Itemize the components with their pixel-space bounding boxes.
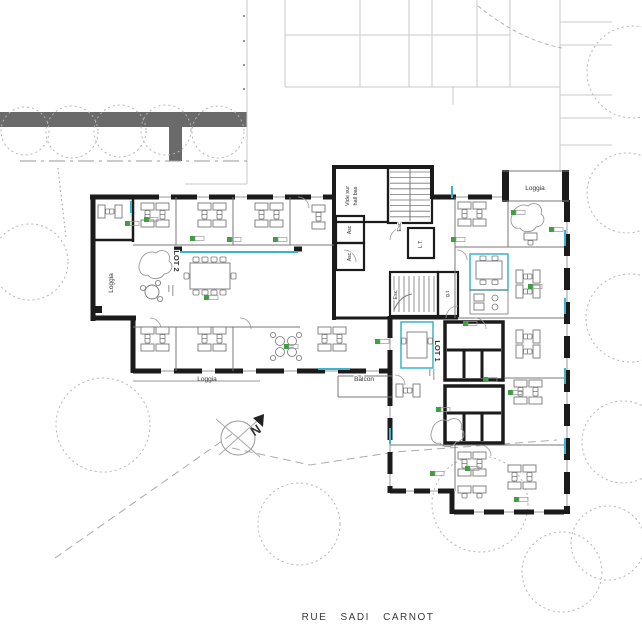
- lot-subtext-mark: [429, 369, 431, 376]
- desk: [508, 465, 521, 472]
- desk: [529, 397, 542, 404]
- plant-square: [227, 237, 232, 242]
- room-label-asc-top: Asc: [347, 225, 353, 234]
- chair: [140, 285, 145, 290]
- labels-layer: Loggia LOT 2 LOT 1 Vide sur hall bas Esc…: [108, 185, 545, 623]
- lot-subtext-mark: [172, 285, 174, 296]
- desk: [514, 380, 527, 387]
- chair: [408, 388, 413, 393]
- plant-square: [144, 217, 149, 222]
- planter-box: [456, 238, 465, 242]
- tree-icon: [587, 153, 642, 233]
- desk-cluster: [255, 203, 283, 227]
- chair: [193, 290, 199, 295]
- desk: [156, 344, 169, 351]
- loggia-post: [562, 170, 569, 202]
- chair: [492, 256, 498, 261]
- desk: [524, 233, 537, 240]
- wc-fixture: [492, 304, 498, 310]
- chair: [270, 332, 275, 337]
- round-table-set: [140, 280, 162, 301]
- plant-square: [436, 407, 441, 412]
- lot2-label: LOT 2: [172, 250, 181, 271]
- plant-square: [508, 390, 513, 395]
- plant-icon: [284, 344, 298, 349]
- chair: [145, 339, 150, 344]
- plant-icon: [514, 497, 528, 502]
- plant-square: [549, 227, 554, 232]
- chair: [462, 494, 467, 499]
- chair: [160, 215, 165, 220]
- desk: [508, 482, 521, 489]
- plant-square: [430, 471, 435, 476]
- round-table: [145, 285, 159, 299]
- chair: [477, 464, 482, 469]
- plant-square: [451, 237, 456, 242]
- chair: [316, 217, 321, 222]
- wc-fixture: [492, 295, 498, 301]
- desk: [141, 344, 154, 351]
- site-boundary: [232, 440, 557, 465]
- property-tick: [243, 88, 245, 90]
- table-petal: [276, 337, 285, 346]
- chair: [184, 273, 189, 279]
- meeting-table: [476, 261, 502, 279]
- desk-cluster: [318, 327, 346, 351]
- site-curve: [478, 6, 562, 48]
- planter-box: [435, 472, 444, 476]
- room-label-loggia-top-right: Loggia: [525, 185, 545, 192]
- desk-cluster: [198, 203, 226, 227]
- planter-box: [516, 211, 525, 215]
- chair: [220, 257, 226, 262]
- tree-icon: [587, 26, 642, 118]
- desk: [413, 384, 420, 397]
- desk: [98, 205, 105, 218]
- tree-icon: [522, 532, 602, 612]
- desk: [213, 327, 226, 334]
- plant-icon: [204, 295, 218, 300]
- desk: [523, 465, 536, 472]
- road-surface: [0, 112, 247, 127]
- desk-cluster: [312, 205, 325, 229]
- room-label-vide-line2: hall bas: [353, 186, 359, 205]
- chair: [157, 296, 162, 301]
- room-label-gt: g.t: [445, 290, 451, 297]
- tree-icon: [258, 483, 340, 565]
- chair: [512, 477, 517, 482]
- chair: [211, 290, 217, 295]
- desk: [516, 330, 523, 343]
- chair: [193, 257, 199, 262]
- floor-plan-drawing: Loggia LOT 2 LOT 1 Vide sur hall bas Esc…: [0, 0, 642, 632]
- desk-cluster: [524, 233, 537, 245]
- desk: [198, 203, 211, 210]
- chair: [492, 280, 498, 285]
- desk: [270, 203, 283, 210]
- chair: [402, 338, 407, 344]
- desk-cluster: [516, 330, 540, 358]
- conference-set: [184, 257, 236, 295]
- street-name-label: RUE SADI CARNOT: [302, 612, 435, 623]
- desk: [516, 345, 523, 358]
- chair: [220, 290, 226, 295]
- desk: [529, 380, 542, 387]
- plant-icon: [430, 471, 444, 476]
- desk-cluster: [198, 327, 226, 351]
- chair: [480, 280, 486, 285]
- desk: [458, 486, 471, 493]
- desk: [255, 203, 268, 210]
- room-label-asc-bottom: Asc: [347, 252, 353, 261]
- chair: [528, 241, 533, 246]
- wc-fixture: [474, 303, 484, 310]
- desk: [533, 345, 540, 358]
- desk: [156, 327, 169, 334]
- chair: [217, 215, 222, 220]
- chair: [296, 355, 301, 360]
- desk: [516, 285, 523, 298]
- lounge-plant-blob: [511, 204, 544, 232]
- door-arc: [457, 250, 467, 260]
- chair: [155, 280, 160, 285]
- room-label-balcon: Balcon: [354, 376, 374, 383]
- plant-icon: [227, 237, 241, 242]
- tree-icon: [0, 224, 68, 300]
- lot-subtext-mark: [433, 369, 435, 380]
- planter-box: [278, 238, 287, 242]
- chair: [274, 215, 279, 220]
- desk: [213, 220, 226, 227]
- chair: [533, 392, 538, 397]
- desk-cluster: [98, 205, 122, 218]
- plant-square: [125, 221, 130, 226]
- road-branch: [169, 127, 182, 161]
- plant-square: [375, 339, 380, 344]
- desk: [156, 203, 169, 210]
- chair: [337, 339, 342, 344]
- meeting-table: [407, 332, 427, 358]
- desk: [270, 220, 283, 227]
- room-label-vide-line1: Vide sur: [345, 186, 351, 206]
- desk: [473, 452, 486, 459]
- chair: [528, 349, 533, 354]
- plant-icon: [511, 210, 525, 215]
- desk: [115, 205, 122, 218]
- plant-square: [514, 497, 519, 502]
- desk: [396, 384, 403, 397]
- chair: [322, 339, 327, 344]
- chair: [202, 257, 208, 262]
- desk-cluster: [458, 202, 486, 226]
- plant-icon: [451, 237, 465, 242]
- plant-square: [284, 344, 289, 349]
- desk: [198, 220, 211, 227]
- chair: [477, 214, 482, 219]
- chair: [296, 332, 301, 337]
- plant-icon: [273, 237, 287, 242]
- desk: [141, 203, 154, 210]
- desk: [458, 202, 471, 209]
- chair: [217, 339, 222, 344]
- room-label-loggia-left: Loggia: [108, 273, 115, 293]
- planter-box: [209, 296, 218, 300]
- site-dotted-line: [58, 168, 66, 238]
- desk: [333, 327, 346, 334]
- plant-icon: [190, 236, 204, 241]
- desk: [312, 205, 325, 212]
- desk-cluster: [396, 384, 420, 397]
- desk: [213, 203, 226, 210]
- property-tick: [243, 40, 245, 42]
- desk-cluster: [514, 380, 542, 404]
- desk: [312, 222, 325, 229]
- desk: [458, 452, 471, 459]
- planter-box: [519, 498, 528, 502]
- chair: [110, 209, 115, 214]
- chair: [160, 339, 165, 344]
- property-tick: [243, 15, 245, 17]
- plant-square: [528, 284, 533, 289]
- planter-box: [195, 237, 204, 241]
- conference-table: [190, 263, 230, 289]
- room-label-esc-bottom: Esc: [393, 290, 399, 299]
- planter-box: [130, 222, 139, 226]
- desk: [533, 285, 540, 298]
- desk: [458, 219, 471, 226]
- chair: [428, 338, 433, 344]
- chair: [202, 339, 207, 344]
- desk: [523, 482, 536, 489]
- plant-square: [190, 236, 195, 241]
- lot-subtext-mark: [168, 285, 170, 292]
- door-arc: [395, 375, 405, 385]
- plant-square: [465, 466, 470, 471]
- chair: [527, 477, 532, 482]
- lounge-plant-blob: [139, 251, 172, 279]
- lot1-label: LOT 1: [433, 340, 442, 361]
- tree-icon: [582, 401, 642, 483]
- loggia-post: [502, 170, 509, 202]
- desk: [318, 327, 331, 334]
- chair: [480, 256, 486, 261]
- desk-cluster: [141, 203, 169, 227]
- desk-cluster: [508, 465, 536, 489]
- plant-icon: [375, 339, 389, 344]
- chair: [528, 289, 533, 294]
- desk: [473, 202, 486, 209]
- chair: [231, 273, 236, 279]
- plant-icon: [436, 407, 450, 412]
- desk: [514, 397, 527, 404]
- desk: [473, 469, 486, 476]
- plant-square: [483, 377, 488, 382]
- chair: [462, 214, 467, 219]
- plant-square: [511, 210, 516, 215]
- desk: [255, 220, 268, 227]
- tree-icon: [571, 506, 642, 580]
- tree-icon: [56, 378, 150, 472]
- property-tick: [243, 64, 245, 66]
- planter-box: [380, 340, 389, 344]
- plant-square: [463, 321, 468, 326]
- wc-fixture: [474, 294, 484, 301]
- tree-icon: [586, 274, 642, 362]
- plant-icon: [465, 466, 479, 471]
- desk: [516, 270, 523, 283]
- plant-square: [204, 295, 209, 300]
- chair: [270, 355, 275, 360]
- chair: [477, 494, 482, 499]
- plant-square: [273, 237, 278, 242]
- room-label-lt: L.T.: [418, 240, 424, 248]
- chair: [259, 215, 264, 220]
- chair: [202, 290, 208, 295]
- desk: [213, 344, 226, 351]
- plant-icon: [549, 227, 563, 232]
- chair: [211, 257, 217, 262]
- desk: [333, 344, 346, 351]
- wall-pier: [95, 306, 102, 313]
- desk: [533, 330, 540, 343]
- desk: [473, 486, 486, 493]
- desk-cluster: [458, 452, 486, 498]
- desk: [141, 327, 154, 334]
- plant-icon: [144, 217, 158, 222]
- desk: [318, 344, 331, 351]
- desk: [198, 344, 211, 351]
- planter-box: [554, 228, 563, 232]
- chair: [528, 274, 533, 279]
- room-label-loggia-bottom: Loggia: [197, 376, 217, 383]
- site-boundary: [55, 434, 232, 558]
- desk-cluster: [141, 327, 169, 351]
- floor-plan-page: Loggia LOT 2 LOT 1 Vide sur hall bas Esc…: [0, 0, 642, 632]
- room-label-esc-top: Esc: [397, 222, 403, 231]
- desk: [473, 219, 486, 226]
- chair: [202, 215, 207, 220]
- table-petal: [276, 348, 285, 357]
- desk: [533, 270, 540, 283]
- chair: [528, 334, 533, 339]
- desk: [198, 327, 211, 334]
